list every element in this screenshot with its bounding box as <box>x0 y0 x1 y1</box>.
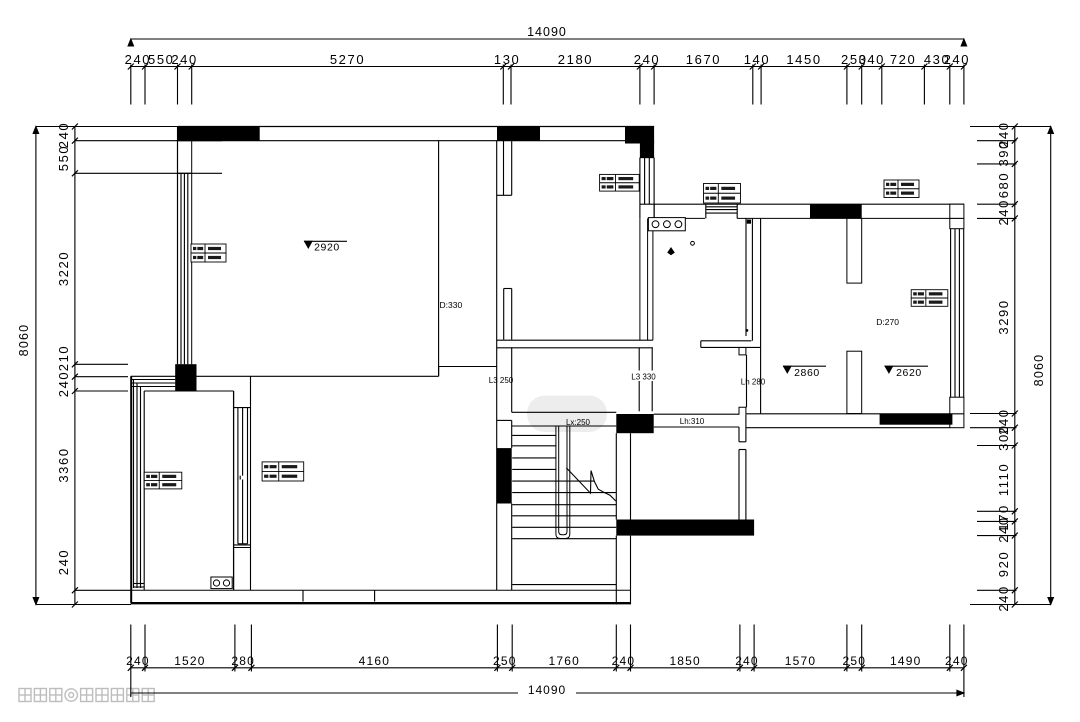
svg-text:14090: 14090 <box>527 25 567 39</box>
svg-text:240: 240 <box>996 516 1011 543</box>
svg-text:240: 240 <box>126 654 150 668</box>
svg-text:250: 250 <box>493 654 517 668</box>
svg-text:8060: 8060 <box>1032 354 1046 387</box>
svg-text:720: 720 <box>890 52 917 67</box>
svg-text:340: 340 <box>859 52 886 67</box>
svg-text:210: 210 <box>56 345 71 372</box>
svg-text:1110: 1110 <box>996 463 1011 496</box>
svg-text:300: 300 <box>996 424 1011 451</box>
svg-text:390: 390 <box>996 140 1011 167</box>
svg-text:240: 240 <box>944 52 971 67</box>
svg-text:3290: 3290 <box>996 299 1011 334</box>
svg-text:1450: 1450 <box>786 52 821 67</box>
svg-text:240: 240 <box>56 549 71 576</box>
svg-text:130: 130 <box>494 52 521 67</box>
svg-text:D:330: D:330 <box>440 300 463 310</box>
svg-text:240: 240 <box>735 654 759 668</box>
svg-text:280: 280 <box>231 654 255 668</box>
svg-text:240: 240 <box>996 199 1011 226</box>
svg-text:L3 330: L3 330 <box>631 373 656 382</box>
svg-text:1760: 1760 <box>549 654 581 668</box>
svg-text:240: 240 <box>171 52 198 67</box>
svg-text:1490: 1490 <box>890 654 922 668</box>
svg-text:Lx:250: Lx:250 <box>566 418 591 427</box>
svg-text:2920: 2920 <box>314 242 340 254</box>
svg-text:2620: 2620 <box>896 367 922 379</box>
svg-text:3360: 3360 <box>56 447 71 482</box>
svg-text:240: 240 <box>634 52 661 67</box>
svg-text:240: 240 <box>612 654 636 668</box>
svg-text:Lh 280: Lh 280 <box>741 377 766 386</box>
svg-text:8060: 8060 <box>17 324 31 357</box>
svg-text:240: 240 <box>56 371 71 398</box>
svg-text:680: 680 <box>996 172 1011 199</box>
svg-text:1850: 1850 <box>669 654 701 668</box>
svg-text:4160: 4160 <box>359 654 391 668</box>
svg-text:240: 240 <box>996 585 1011 612</box>
svg-text:240: 240 <box>945 654 969 668</box>
svg-text:250: 250 <box>842 654 866 668</box>
svg-text:2180: 2180 <box>558 52 593 67</box>
svg-text:14090: 14090 <box>528 683 566 697</box>
svg-text:5270: 5270 <box>330 52 365 67</box>
svg-text:L3 250: L3 250 <box>489 376 514 385</box>
svg-text:1670: 1670 <box>686 52 721 67</box>
svg-text:140: 140 <box>744 52 771 67</box>
svg-text:1520: 1520 <box>174 654 206 668</box>
svg-text:3220: 3220 <box>56 251 71 286</box>
svg-text:240: 240 <box>56 122 71 149</box>
svg-text:920: 920 <box>996 551 1011 578</box>
svg-text:D:270: D:270 <box>876 317 899 327</box>
svg-text:2860: 2860 <box>794 367 820 379</box>
svg-text:Lh:310: Lh:310 <box>680 417 705 426</box>
svg-text:550: 550 <box>56 145 71 172</box>
svg-text:1570: 1570 <box>785 654 817 668</box>
